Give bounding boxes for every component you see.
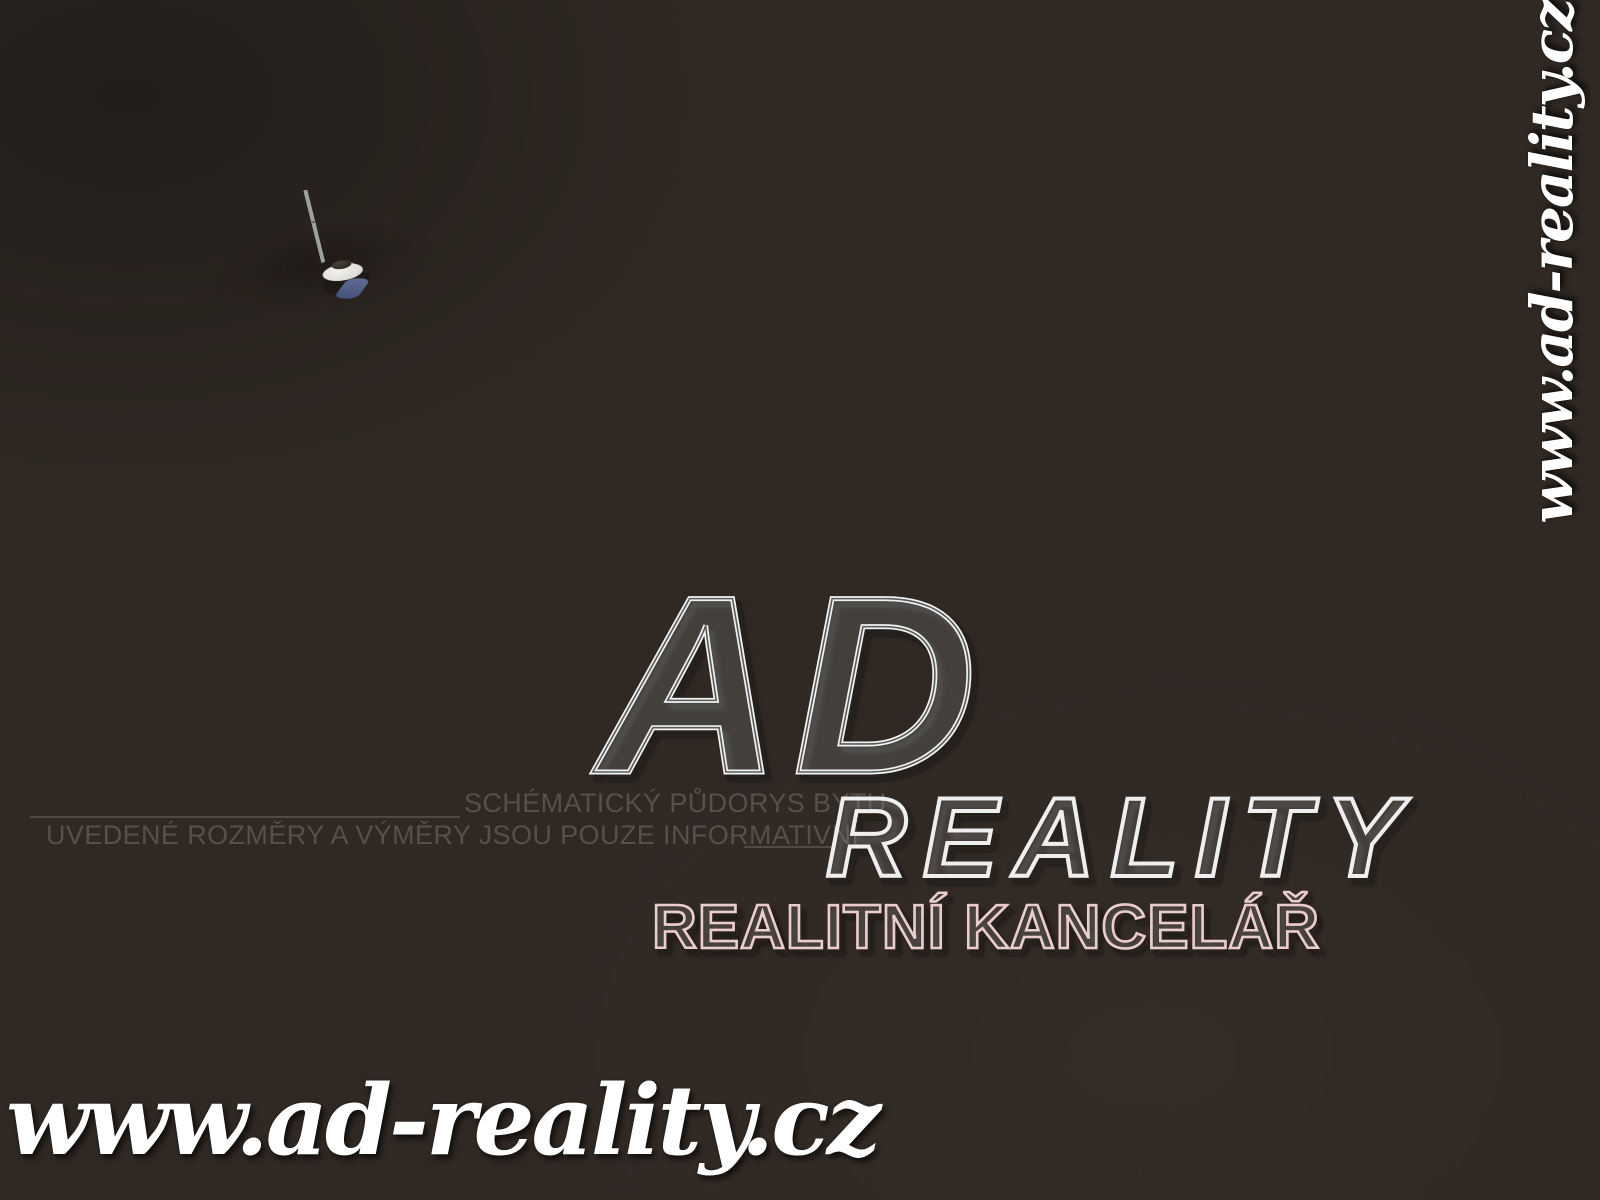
kitchen-sink-basin (311, 221, 315, 223)
watermark-right-vertical: www.ad-reality.cz (1518, 0, 1586, 524)
person-figure (309, 256, 379, 305)
apartment-model (0, 201, 1600, 1200)
disclaimer-rule-2 (744, 846, 834, 848)
disclaimer-line-1: SCHÉMATICKÝ PŮDORYS BYTU (464, 788, 887, 819)
watermark-bottom-left: www.ad-reality.cz (6, 1064, 878, 1177)
floor-plan-screenshot: SCHÉMATICKÝ PŮDORYS BYTU UVEDENÉ ROZMĚRY… (0, 0, 1600, 1200)
disclaimer-rule-1 (30, 816, 460, 818)
scene-3d (0, 0, 1600, 1200)
door-living-room-nw (304, 190, 325, 263)
disclaimer-line-2: UVEDENÉ ROZMĚRY A VÝMĚRY JSOU POUZE INFO… (46, 820, 859, 851)
door-living-room-corridor (304, 190, 323, 264)
balcony-rail (318, 228, 319, 232)
